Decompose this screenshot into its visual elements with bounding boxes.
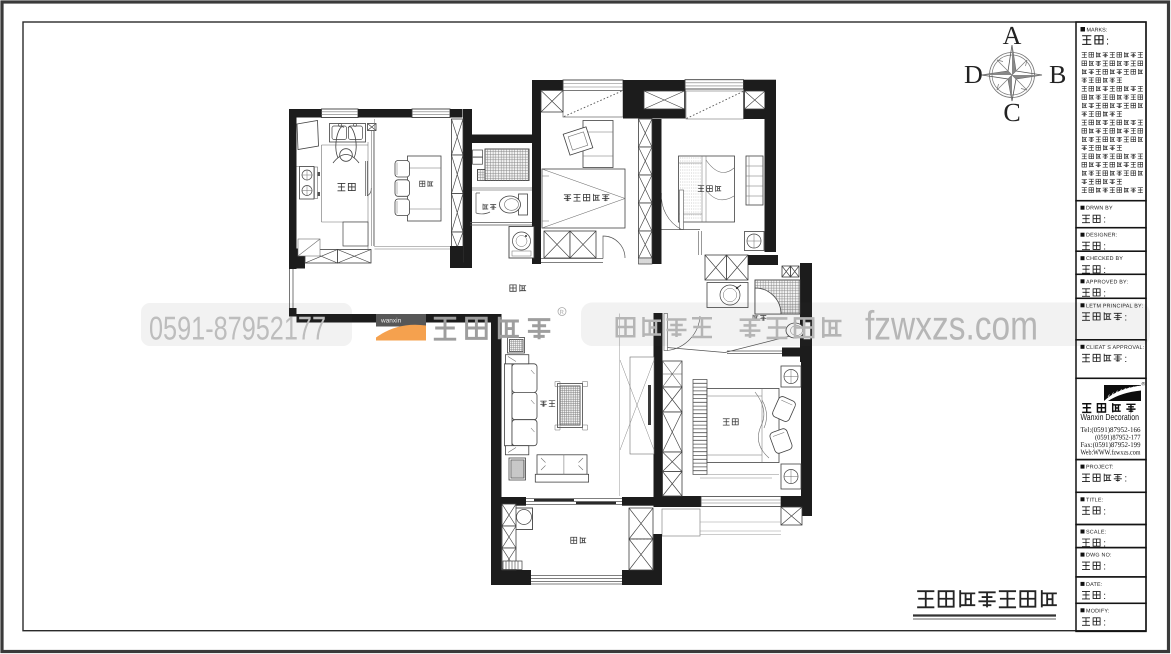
svg-text::: :: [1103, 506, 1106, 517]
svg-text::: :: [1103, 591, 1106, 602]
svg-text:A: A: [1003, 21, 1022, 50]
svg-text::: :: [1106, 36, 1109, 48]
svg-text:Wanxin Decoration: Wanxin Decoration: [1081, 412, 1140, 422]
svg-text:LETM PRINCIPAL BY:: LETM PRINCIPAL BY:: [1086, 303, 1143, 309]
svg-text:D: D: [964, 60, 983, 89]
svg-text:CHECKED BY: CHECKED BY: [1086, 256, 1123, 262]
svg-text:wanxin: wanxin: [380, 318, 402, 325]
svg-text:CLIEAT S APPROVAL:: CLIEAT S APPROVAL:: [1086, 345, 1144, 351]
svg-text::: :: [1124, 354, 1127, 365]
svg-text:0591-87952177: 0591-87952177: [149, 310, 326, 347]
svg-text:B: B: [1049, 60, 1066, 89]
svg-text:®: ®: [1142, 382, 1146, 388]
svg-text:C: C: [1003, 98, 1020, 127]
svg-text:MODIFY:: MODIFY:: [1086, 608, 1110, 614]
svg-text:DATE:: DATE:: [1086, 582, 1102, 588]
svg-text::: :: [1103, 617, 1106, 628]
svg-text::: :: [1103, 562, 1106, 573]
svg-text:DESIGNER:: DESIGNER:: [1086, 233, 1117, 239]
svg-text:DRWN BY: DRWN BY: [1086, 206, 1113, 212]
svg-text:DWG NO:: DWG NO:: [1086, 553, 1112, 559]
svg-text::: :: [1124, 312, 1127, 323]
svg-text:R: R: [560, 309, 565, 316]
svg-text:PROJECT:: PROJECT:: [1086, 465, 1114, 471]
svg-text:fzwxzs.com: fzwxzs.com: [865, 303, 1038, 349]
svg-text:Web:WWW.fzwxzs.com: Web:WWW.fzwxzs.com: [1081, 449, 1141, 457]
svg-text::: :: [1124, 474, 1127, 485]
svg-text::: :: [1103, 215, 1106, 226]
svg-text:TITLE:: TITLE:: [1086, 497, 1103, 503]
svg-text:MARKS:: MARKS:: [1087, 28, 1108, 34]
svg-text:SCALE:: SCALE:: [1086, 530, 1106, 536]
svg-text:APPROVED BY:: APPROVED BY:: [1086, 279, 1128, 285]
